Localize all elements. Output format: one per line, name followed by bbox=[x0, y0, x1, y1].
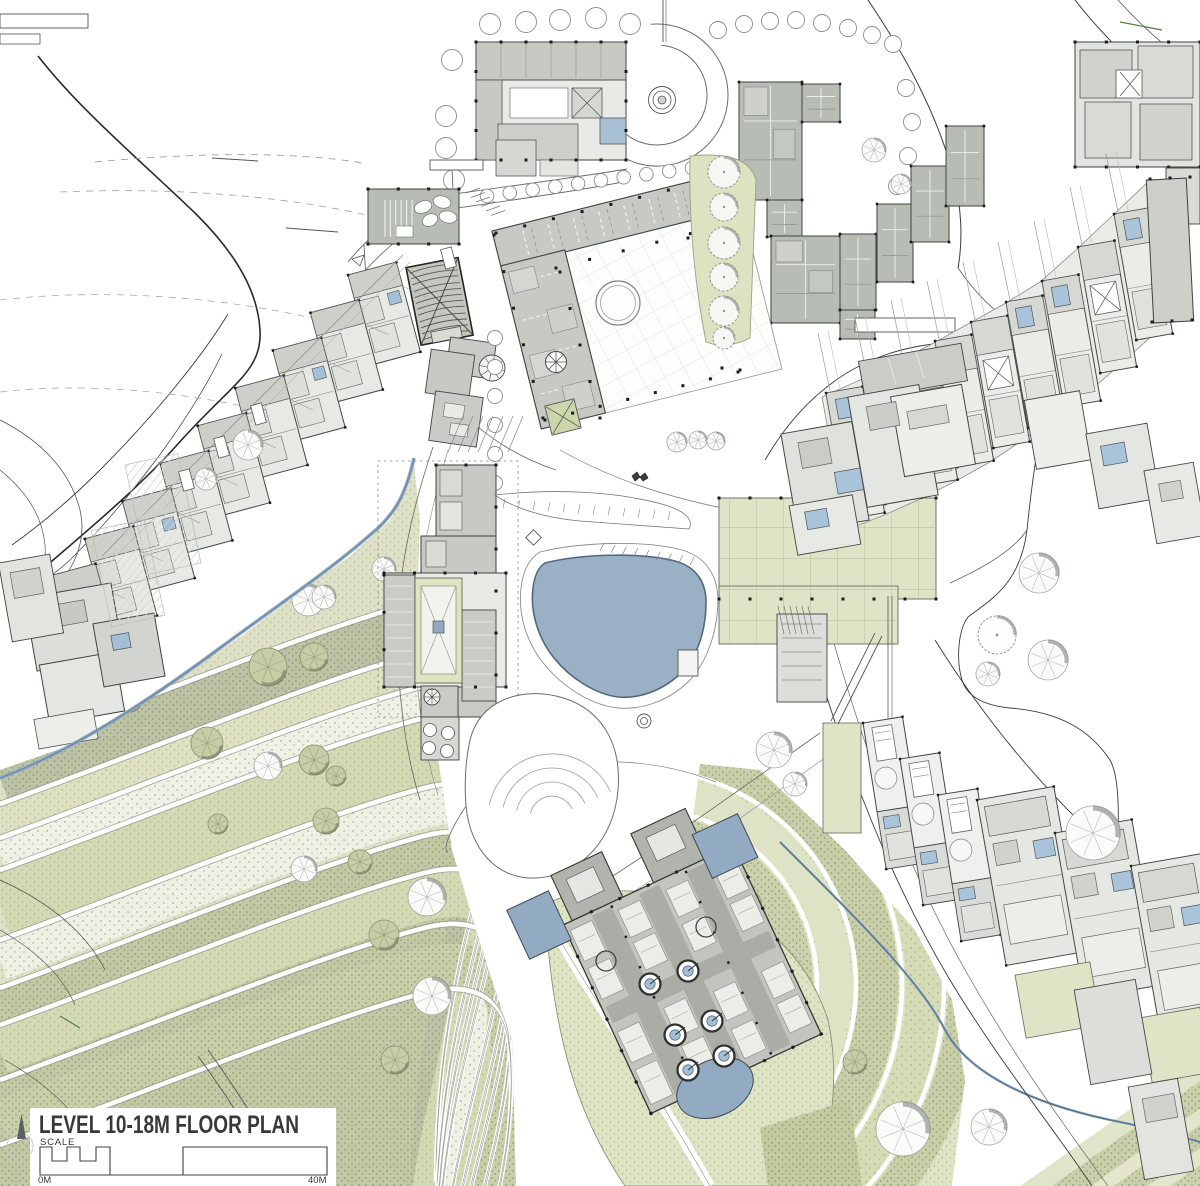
svg-text:0M: 0M bbox=[38, 1175, 51, 1186]
svg-text:40M: 40M bbox=[308, 1175, 327, 1186]
svg-text:LEVEL 10-18M FLOOR PLAN: LEVEL 10-18M FLOOR PLAN bbox=[39, 1111, 299, 1139]
svg-text:SCALE: SCALE bbox=[40, 1137, 75, 1148]
